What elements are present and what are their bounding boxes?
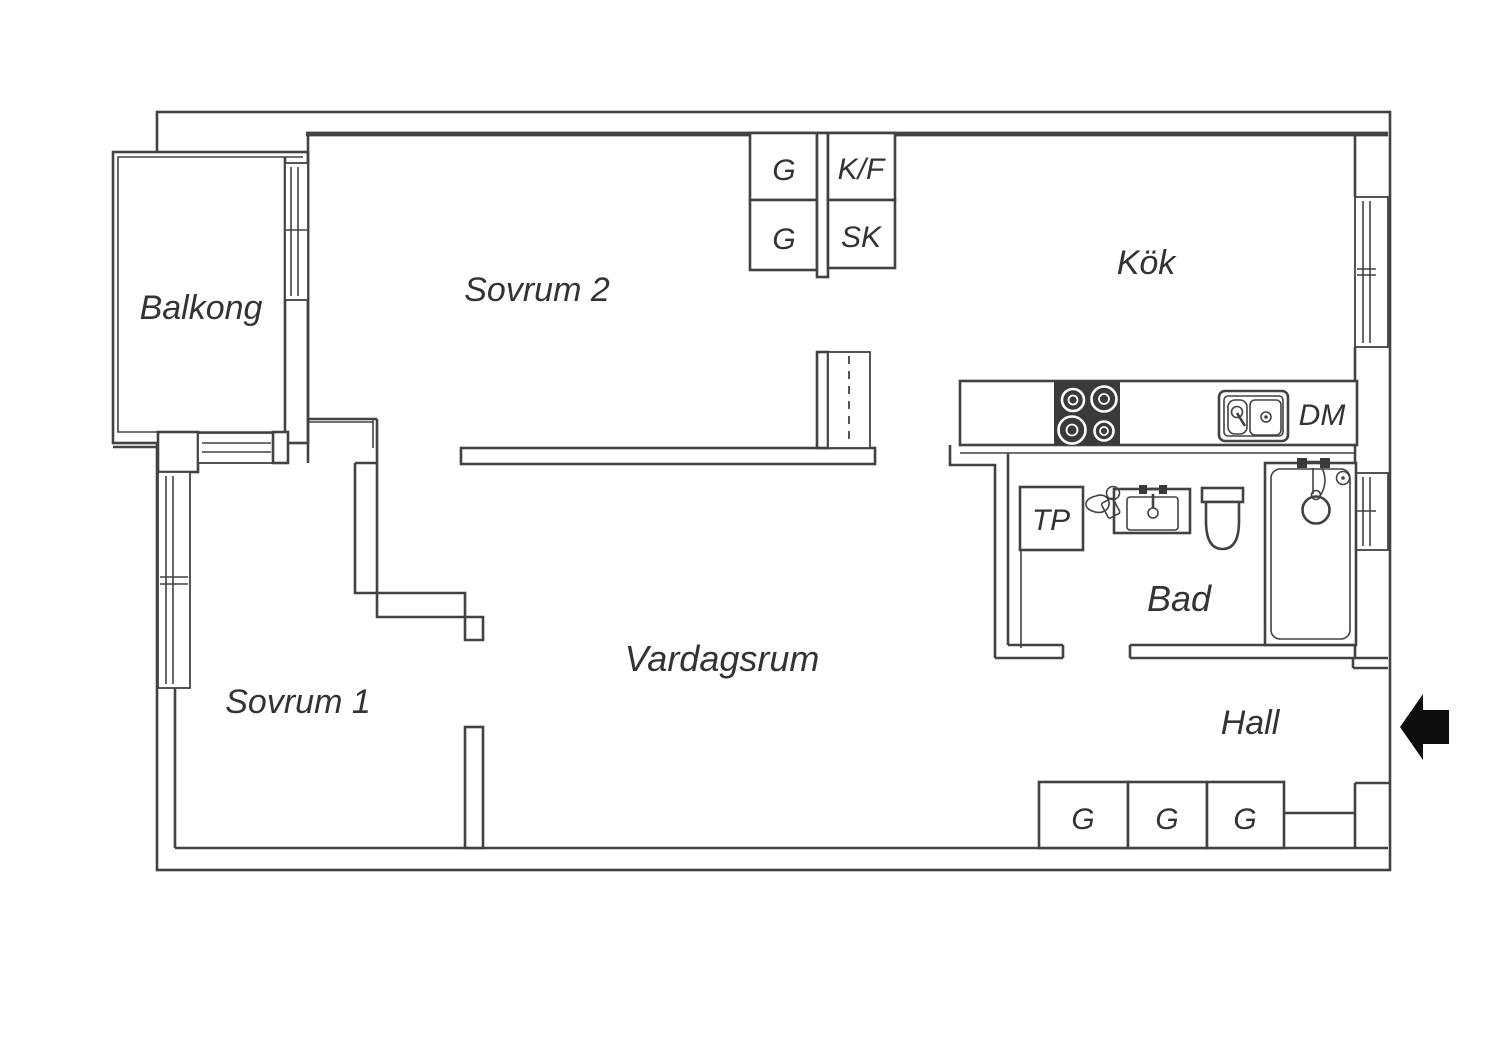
window-sovrum1-west-icon — [158, 472, 190, 688]
fixture-label-hall-g3: G — [1233, 803, 1256, 836]
window-balcony-icon — [285, 163, 308, 300]
fixture-label-kf: K/F — [838, 153, 886, 186]
fixture-label-sk: SK — [841, 221, 883, 254]
fixture-label-tp: TP — [1032, 504, 1070, 537]
sovrum2-south-wall — [461, 448, 875, 464]
room-label-balkong: Balkong — [140, 289, 263, 327]
bathtub-icon — [1265, 458, 1356, 645]
stove-icon — [1054, 381, 1120, 445]
kitchen-counter — [960, 381, 1357, 453]
fixture-label-hall-g1: G — [1071, 803, 1094, 836]
toilet-icon — [1202, 488, 1243, 549]
room-label-bad: Bad — [1147, 578, 1212, 619]
room-label-vardagsrum: Vardagsrum — [625, 638, 820, 679]
room-label-hall: Hall — [1221, 704, 1281, 742]
floor-plan-svg: Balkong — [0, 0, 1500, 1060]
sovrum2-sliding-door-icon — [817, 352, 870, 448]
room-label-sovrum2: Sovrum 2 — [464, 271, 610, 309]
room-balkong: Balkong — [113, 134, 308, 463]
top-cabinets: G G K/F SK — [750, 133, 895, 277]
floor-plan-page: Balkong — [0, 0, 1500, 1060]
fixture-label-hall-g2: G — [1155, 803, 1178, 836]
room-label-sovrum1: Sovrum 1 — [225, 683, 371, 721]
fixture-label-g2: G — [772, 223, 795, 256]
fixture-label-g1: G — [772, 154, 795, 187]
fixture-label-dm: DM — [1299, 399, 1346, 432]
window-kok-icon — [1355, 197, 1388, 347]
room-label-kok: Kök — [1117, 244, 1178, 282]
kitchen-sink-icon — [1219, 391, 1288, 441]
window-bad-icon — [1355, 473, 1388, 550]
cabinet-divider-wall — [817, 133, 828, 277]
window-sovrum1-north-icon — [198, 433, 275, 463]
